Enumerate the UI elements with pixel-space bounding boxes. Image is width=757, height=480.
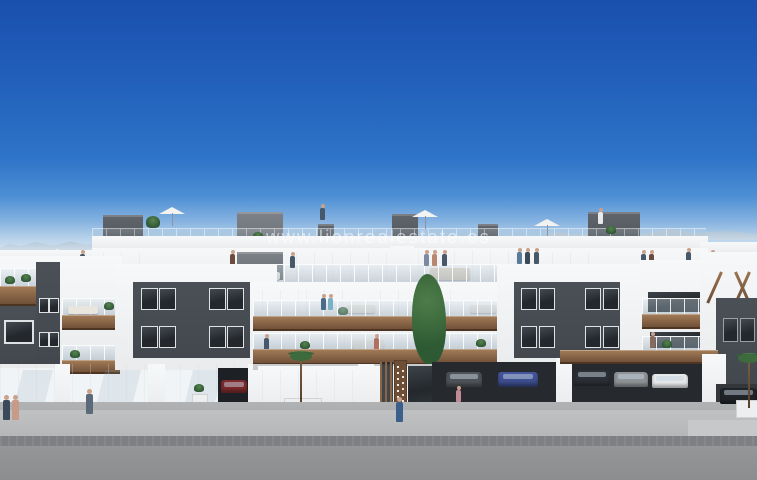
person-figure [442, 254, 447, 266]
wood-slat-screen [380, 362, 393, 406]
window [723, 318, 738, 342]
person-figure [517, 252, 522, 264]
facade-dark-recess [36, 262, 60, 364]
balcony-plant-icon [300, 341, 310, 349]
architectural-render-scene: www.lionrealestate.es [0, 0, 757, 480]
window [209, 326, 226, 348]
balcony-plant-icon [5, 276, 15, 284]
person-figure [3, 400, 10, 420]
car [446, 372, 482, 387]
wood-balcony-band [62, 315, 120, 330]
person-figure [432, 254, 437, 266]
person-figure [598, 212, 603, 224]
person-figure [424, 254, 429, 266]
road [0, 446, 757, 480]
window [227, 288, 244, 310]
window [521, 288, 537, 310]
window [740, 318, 755, 342]
person-figure [650, 336, 655, 348]
rooftop-plant-icon [146, 216, 160, 228]
window [4, 320, 34, 344]
palm-tree-icon [748, 362, 750, 408]
window [159, 326, 176, 348]
person-figure [321, 298, 326, 310]
person-figure [396, 402, 403, 422]
person-figure [525, 252, 530, 264]
balcony-plant-icon [21, 274, 31, 282]
terrace-furniture [68, 306, 98, 314]
watermark-text: www.lionrealestate.es [266, 226, 491, 248]
person-figure [86, 394, 93, 414]
balcony-plant-icon [476, 339, 486, 347]
window [539, 288, 555, 310]
balcony-plant-icon [70, 350, 80, 358]
car [498, 372, 538, 387]
window [539, 326, 555, 348]
garage-pillar [556, 358, 572, 408]
window [603, 326, 619, 348]
palm-tree-icon [300, 360, 302, 404]
garage-wood-soffit [560, 350, 718, 364]
person-figure [12, 400, 19, 420]
balcony-plant-icon [104, 302, 114, 310]
plant-icon [194, 384, 204, 392]
car [574, 370, 610, 386]
person-figure [534, 252, 539, 264]
person-figure [290, 256, 295, 268]
window [49, 298, 59, 313]
window [141, 326, 158, 348]
person-figure [456, 390, 461, 402]
window [141, 288, 158, 310]
balcony-plant-icon [662, 340, 672, 348]
planter-box [736, 400, 757, 418]
window [39, 298, 49, 313]
person-figure [320, 208, 325, 220]
car [614, 372, 648, 387]
wood-balcony-band [253, 316, 503, 331]
window [585, 326, 601, 348]
window [49, 332, 59, 347]
car [652, 374, 688, 388]
window [39, 332, 49, 347]
rooftop-plant-icon [606, 226, 616, 234]
window [521, 326, 537, 348]
window [209, 288, 226, 310]
person-figure [328, 298, 333, 310]
building-shadow [0, 402, 757, 410]
window [603, 288, 619, 310]
window [159, 288, 176, 310]
window [585, 288, 601, 310]
umbrella-icon [159, 207, 185, 227]
window [227, 326, 244, 348]
wood-balcony-band [0, 286, 36, 306]
car [221, 380, 247, 393]
